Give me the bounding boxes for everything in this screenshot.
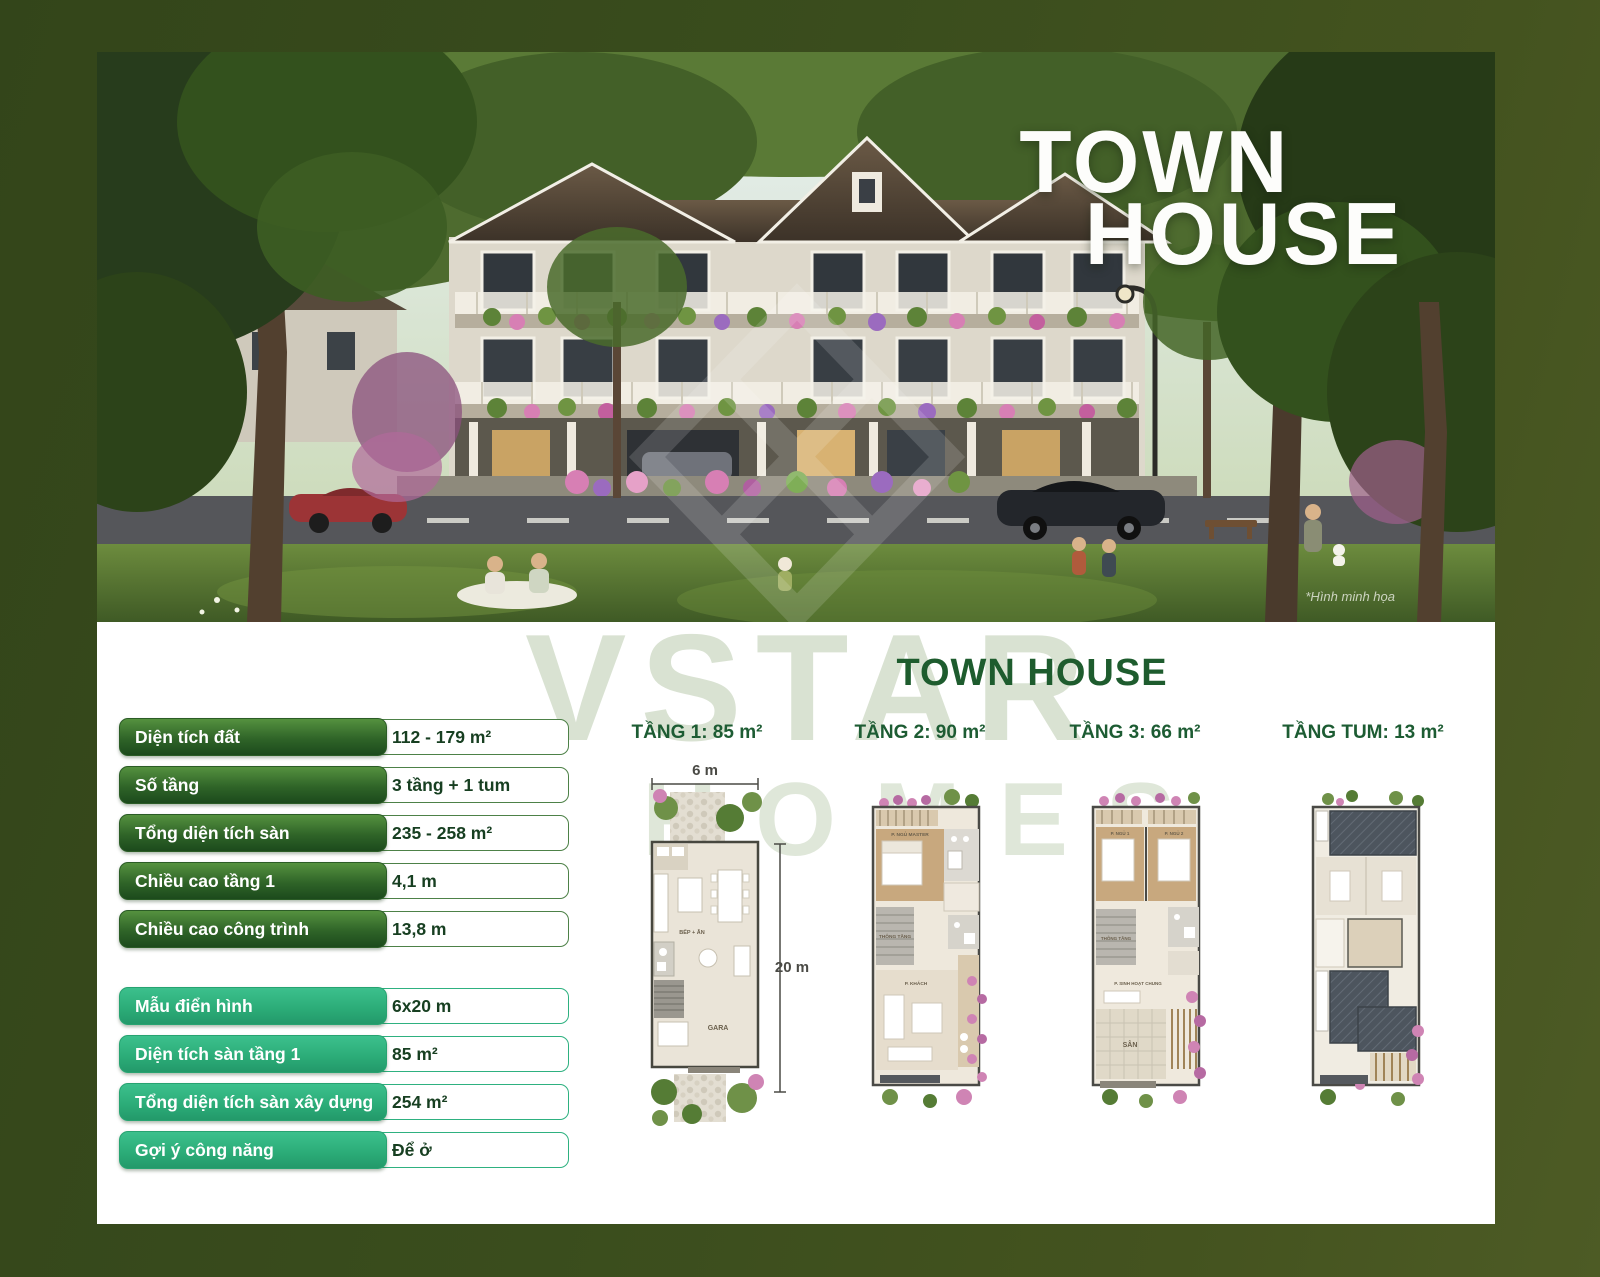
spec-row: 85 m²Diện tích sàn tầng 1 bbox=[119, 1035, 549, 1073]
svg-text:P. KHÁCH: P. KHÁCH bbox=[905, 980, 928, 987]
spec-row: 3 tầng + 1 tumSố tầng bbox=[119, 766, 549, 804]
panel-title: TOWN HOUSE bbox=[832, 652, 1232, 695]
floor-plan-4 bbox=[1300, 785, 1432, 1110]
floor-plan-2: P. NGỦ MASTER THÔNG TẦNG bbox=[860, 785, 992, 1110]
floor-header-1: TẦNG 1: 85 m² bbox=[567, 722, 827, 744]
spec-label: Gợi ý công năng bbox=[119, 1131, 387, 1169]
floor-plan-1: 6 m BẾP bbox=[630, 762, 810, 1134]
spec-row: 235 - 258 m²Tổng diện tích sàn bbox=[119, 814, 549, 852]
spec-value: 254 m² bbox=[369, 1084, 569, 1120]
spec-value: 235 - 258 m² bbox=[369, 815, 569, 851]
hero-title-line2: HOUSE bbox=[1085, 190, 1403, 278]
svg-text:THÔNG TẦNG: THÔNG TẦNG bbox=[1101, 934, 1132, 941]
spec-label: Mẫu điển hình bbox=[119, 987, 387, 1025]
spec-row: 254 m²Tổng diện tích sàn xây dựng bbox=[119, 1083, 549, 1121]
brochure-sheet: TOWN HOUSE *Hình minh họa VSTAR HOMES TO… bbox=[97, 52, 1495, 1224]
hero-caption: *Hình minh họa bbox=[1305, 589, 1395, 604]
spec-row: 13,8 mChiều cao công trình bbox=[119, 910, 549, 948]
spec-value: 6x20 m bbox=[369, 988, 569, 1024]
spec-table-group2: 6x20 mMẫu điển hình85 m²Diện tích sàn tầ… bbox=[119, 987, 549, 1179]
svg-text:BẾP + ĂN: BẾP + ĂN bbox=[679, 929, 704, 936]
spec-value: 4,1 m bbox=[369, 863, 569, 899]
second-floor-balcony bbox=[455, 382, 1139, 418]
svg-text:P. NGỦ 1: P. NGỦ 1 bbox=[1111, 830, 1130, 836]
svg-text:P. SINH HOẠT CHUNG: P. SINH HOẠT CHUNG bbox=[1114, 981, 1162, 986]
spec-row: 112 - 179 m²Diện tích đất bbox=[119, 718, 549, 756]
spec-label: Diện tích đất bbox=[119, 718, 387, 756]
svg-text:P. NGỦ 2: P. NGỦ 2 bbox=[1165, 830, 1184, 836]
spec-value: 3 tầng + 1 tum bbox=[369, 767, 569, 803]
svg-text:6 m: 6 m bbox=[692, 762, 718, 779]
spec-row: 4,1 mChiều cao tầng 1 bbox=[119, 862, 549, 900]
spec-label: Tổng diện tích sàn bbox=[119, 814, 387, 852]
svg-text:GARA: GARA bbox=[708, 1025, 729, 1032]
info-panel: VSTAR HOMES TOWN HOUSE 112 - 179 m²Diện … bbox=[97, 622, 1495, 1224]
floor-header-3: TẦNG 3: 66 m² bbox=[1005, 722, 1265, 744]
spec-value: 13,8 m bbox=[369, 911, 569, 947]
spec-label: Tổng diện tích sàn xây dựng bbox=[119, 1083, 387, 1121]
spec-row: Để ởGợi ý công năng bbox=[119, 1131, 549, 1169]
spec-label: Chiều cao tầng 1 bbox=[119, 862, 387, 900]
floor-header-4: TẦNG TUM: 13 m² bbox=[1233, 722, 1493, 744]
spec-label: Chiều cao công trình bbox=[119, 910, 387, 948]
floor-plan-3: P. NGỦ 1 P. NGỦ 2 THÔNG TẦNG P. SINH HOẠ… bbox=[1080, 785, 1212, 1110]
spec-value: Để ở bbox=[369, 1132, 569, 1168]
spec-value: 85 m² bbox=[369, 1036, 569, 1072]
spec-label: Số tầng bbox=[119, 766, 387, 804]
svg-text:SÂN: SÂN bbox=[1123, 1040, 1138, 1049]
spec-table-group1: 112 - 179 m²Diện tích đất3 tầng + 1 tumS… bbox=[119, 718, 549, 958]
svg-text:P. NGỦ MASTER: P. NGỦ MASTER bbox=[891, 831, 929, 838]
svg-text:20 m: 20 m bbox=[775, 959, 809, 976]
spec-value: 112 - 179 m² bbox=[369, 719, 569, 755]
hero-image: TOWN HOUSE *Hình minh họa bbox=[97, 52, 1495, 622]
spec-label: Diện tích sàn tầng 1 bbox=[119, 1035, 387, 1073]
spec-row: 6x20 mMẫu điển hình bbox=[119, 987, 549, 1025]
